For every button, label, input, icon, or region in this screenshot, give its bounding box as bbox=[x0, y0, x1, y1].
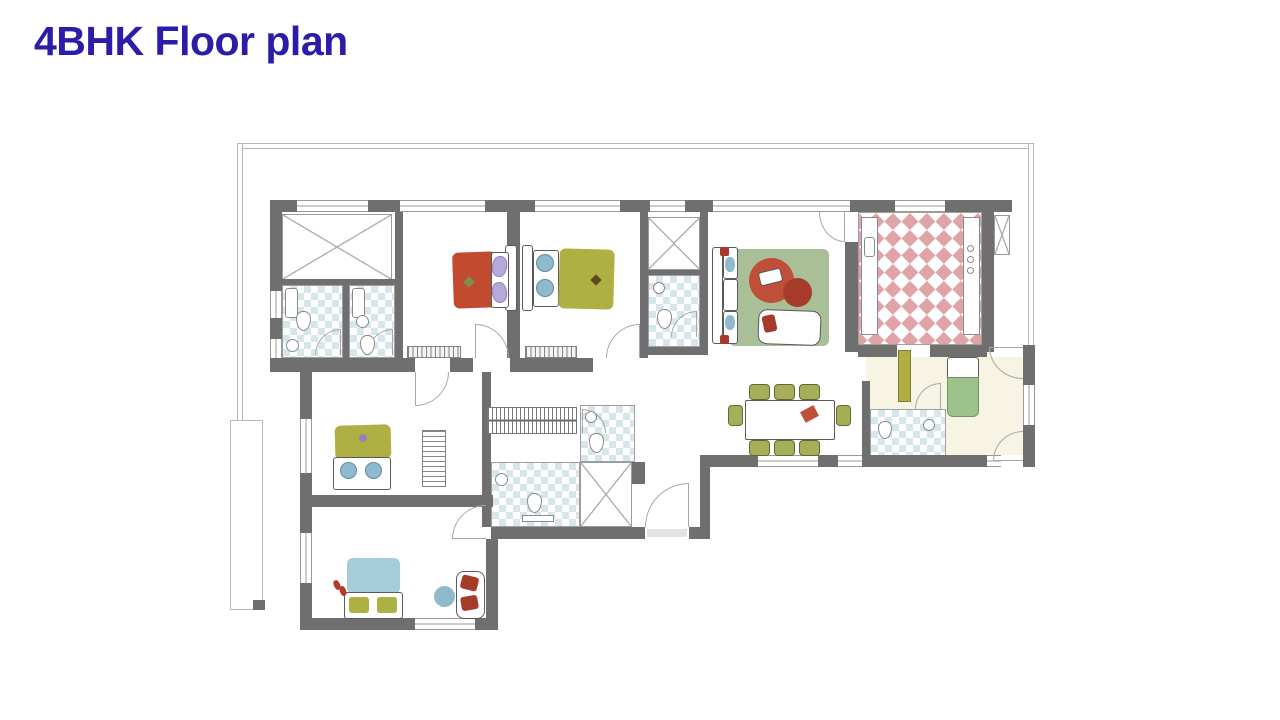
wall-segment bbox=[485, 200, 535, 212]
wall-segment bbox=[450, 358, 473, 372]
floor-plan bbox=[237, 143, 1047, 653]
blanket-accent bbox=[359, 434, 367, 442]
kitchen-counter-left bbox=[861, 217, 878, 335]
sink bbox=[585, 411, 597, 423]
kitchen-cabinet-olive bbox=[898, 350, 911, 402]
utility-bed-blanket bbox=[947, 377, 979, 417]
bedroom3-wardrobe bbox=[422, 430, 446, 487]
window bbox=[713, 200, 850, 212]
window bbox=[535, 200, 620, 212]
dining-chair bbox=[774, 440, 795, 456]
coffee-table-small bbox=[783, 278, 812, 307]
dining-chair bbox=[799, 440, 820, 456]
dining-table bbox=[745, 400, 835, 440]
radiator bbox=[407, 346, 461, 358]
wall-segment bbox=[368, 200, 400, 212]
wall-segment bbox=[858, 345, 897, 357]
stove-burner bbox=[967, 267, 974, 274]
wall-segment bbox=[620, 200, 650, 212]
bed-blanket-olive bbox=[335, 424, 392, 459]
dining-chair bbox=[774, 384, 795, 400]
balcony-left bbox=[230, 420, 263, 610]
window bbox=[895, 200, 945, 212]
wall-segment bbox=[1023, 455, 1035, 467]
pillow bbox=[365, 462, 382, 479]
sofa-back bbox=[712, 247, 723, 344]
window bbox=[838, 455, 862, 467]
wall-segment bbox=[270, 358, 415, 372]
sofa-accent bbox=[720, 335, 729, 344]
dining-chair bbox=[799, 384, 820, 400]
door-arc-bedroom3 bbox=[415, 372, 449, 406]
stove-burner bbox=[967, 256, 974, 263]
pillow bbox=[536, 279, 554, 297]
sink bbox=[923, 419, 935, 431]
door-arc-bedroom2 bbox=[606, 324, 640, 358]
wall-segment bbox=[300, 372, 312, 419]
kitchen-sink bbox=[864, 237, 875, 257]
bed-headboard bbox=[522, 245, 533, 311]
bath-shelf bbox=[522, 515, 554, 522]
wall-segment bbox=[700, 455, 758, 467]
sofa-pillow bbox=[725, 257, 735, 272]
wall-segment bbox=[395, 212, 403, 358]
stove-burner bbox=[967, 245, 974, 252]
wall-segment bbox=[982, 205, 994, 352]
kitchen-counter-right bbox=[963, 217, 980, 335]
wall-segment bbox=[930, 345, 987, 357]
window bbox=[400, 200, 485, 212]
wall-segment bbox=[818, 455, 838, 467]
pillow bbox=[377, 597, 397, 613]
door-arc-entrance bbox=[645, 483, 689, 527]
page-title: 4BHK Floor plan bbox=[34, 18, 348, 65]
door-arc-kitchen bbox=[819, 212, 845, 242]
wall-segment bbox=[640, 270, 708, 275]
window bbox=[758, 455, 818, 467]
wall-segment bbox=[343, 285, 349, 358]
pillow bbox=[536, 254, 554, 272]
pillow bbox=[349, 597, 369, 613]
pouf bbox=[434, 586, 455, 607]
wall-segment bbox=[700, 467, 710, 539]
radiator bbox=[525, 346, 577, 358]
door-arc-bedroom1 bbox=[475, 324, 509, 358]
armchair-cushion bbox=[460, 595, 479, 612]
utility-bed-pillow bbox=[947, 357, 979, 379]
sofa-pillow bbox=[725, 315, 735, 330]
sink bbox=[653, 282, 665, 294]
window bbox=[415, 618, 475, 630]
wall-segment bbox=[486, 539, 498, 630]
window bbox=[300, 533, 312, 583]
dining-chair bbox=[749, 384, 770, 400]
wall-segment bbox=[945, 200, 1012, 212]
sofa-cushion bbox=[723, 279, 738, 311]
entrance-threshold bbox=[647, 529, 687, 537]
bed-blanket-blue bbox=[347, 558, 400, 594]
window bbox=[650, 200, 685, 212]
wall-segment bbox=[685, 200, 713, 212]
walk-in-closet bbox=[282, 214, 392, 280]
sink bbox=[495, 473, 508, 486]
window bbox=[1023, 385, 1035, 425]
wall-segment bbox=[270, 318, 282, 339]
dining-chair bbox=[836, 405, 851, 426]
wall-segment bbox=[270, 200, 282, 291]
wall-segment bbox=[632, 462, 645, 484]
wall-segment bbox=[282, 279, 395, 285]
pillow bbox=[340, 462, 357, 479]
sink bbox=[286, 339, 299, 352]
dining-chair bbox=[749, 440, 770, 456]
wall-segment bbox=[300, 507, 312, 533]
window bbox=[270, 291, 282, 318]
kitchen-tall-cabinet bbox=[994, 215, 1010, 255]
wall-segment bbox=[850, 200, 895, 212]
wall-segment bbox=[491, 527, 645, 539]
wall-segment bbox=[640, 347, 708, 355]
wall-segment bbox=[700, 212, 708, 355]
wall-segment bbox=[640, 212, 648, 358]
wall-segment bbox=[1023, 345, 1035, 385]
corridor-wardrobe bbox=[487, 407, 577, 434]
wall-segment bbox=[253, 600, 265, 610]
window bbox=[300, 419, 312, 473]
mid-closet bbox=[580, 462, 632, 527]
wall-segment bbox=[300, 495, 493, 507]
wall-segment bbox=[510, 358, 593, 372]
sink bbox=[356, 315, 369, 328]
property-line-top bbox=[237, 143, 1034, 149]
wall-segment bbox=[862, 455, 987, 467]
bed-blanket-olive bbox=[558, 248, 615, 309]
shower-tub bbox=[285, 288, 298, 318]
wall-segment bbox=[300, 618, 415, 630]
wall-segment bbox=[845, 242, 858, 352]
door-arc-master-bedroom bbox=[452, 505, 486, 539]
hall-closet bbox=[648, 217, 700, 270]
dining-chair bbox=[728, 405, 743, 426]
sofa-accent bbox=[720, 247, 729, 256]
shower-tub bbox=[352, 288, 365, 318]
window bbox=[297, 200, 368, 212]
